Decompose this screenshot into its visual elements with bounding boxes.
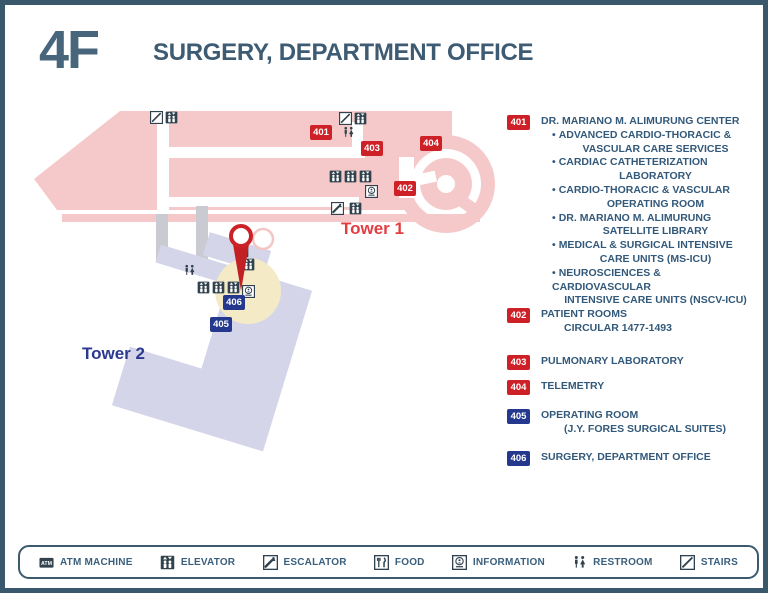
elevator-icon [242,258,255,271]
information-icon [452,555,467,570]
legend-item-information: INFORMATION [452,555,545,570]
room-entry-402: 402PATIENT ROOMSCIRCULAR 1477-1493 [507,308,749,336]
svg-text:ATM: ATM [41,561,53,567]
room-badge: 401 [507,115,530,130]
elevator-icon [236,245,249,258]
room-sub-item: •NEUROSCIENCES & CARDIOVASCULARINTENSIVE… [541,267,749,308]
restroom-icon [183,264,196,277]
legend-item-food: FOOD [374,555,425,570]
room-badge: 403 [507,355,530,370]
stairs-icon [339,112,352,125]
room-label: SURGERY, DEPARTMENT OFFICE [541,451,749,465]
legend-label: STAIRS [701,557,738,568]
room-label: DR. MARIANO M. ALIMURUNG CENTER•ADVANCED… [541,115,749,308]
room-badge: 402 [507,308,530,323]
stairs-icon [150,111,163,124]
restroom-icon [572,555,587,570]
room-entry-404: 404TELEMETRY [507,380,749,395]
map-room-badge-401: 401 [310,125,332,140]
map-room-badge-405: 405 [210,317,232,332]
legend-label: RESTROOM [593,557,652,568]
elevator-icon [165,111,178,124]
room-sub-item: •CARDIAC CATHETERIZATIONLABORATORY [541,156,749,184]
room-badge: 405 [507,409,530,424]
tower1-label: Tower 1 [341,219,404,239]
floor-map-page: 4F SURGERY, DEPARTMENT OFFICE Tower 1 To… [0,0,768,593]
legend-label: ESCALATOR [284,557,347,568]
room-entry-403: 403PULMONARY LABORATORY [507,355,749,370]
map-room-badge-404: 404 [420,136,442,151]
room-entry-401: 401DR. MARIANO M. ALIMURUNG CENTER•ADVAN… [507,115,749,308]
room-label: PULMONARY LABORATORY [541,355,749,369]
room-sub-item: •CARDIO-THORACIC & VASCULAROPERATING ROO… [541,184,749,212]
stairs-icon [680,555,695,570]
tower2-label: Tower 2 [82,344,145,364]
legend-label: ELEVATOR [181,557,235,568]
room-sub-item: •MEDICAL & SURGICAL INTENSIVECARE UNITS … [541,239,749,267]
elevator-icon [212,281,225,294]
elevator-icon [329,170,342,183]
restroom-icon [342,126,355,139]
legend-label: INFORMATION [473,557,545,568]
escalator-icon [263,555,278,570]
room-sub-item: •ADVANCED CARDIO-THORACIC &VASCULAR CARE… [541,129,749,157]
room-label: PATIENT ROOMSCIRCULAR 1477-1493 [541,308,749,336]
room-badge: 404 [507,380,530,395]
elevator-icon [197,281,210,294]
elevator-icon [344,170,357,183]
legend-item-escalator: ESCALATOR [263,555,347,570]
information-icon [365,185,378,198]
legend-label: ATM MACHINE [60,557,133,568]
legend-item-stairs: STAIRS [680,555,738,570]
elevator-icon [349,202,362,215]
room-badge: 406 [507,451,530,466]
legend-item-restroom: RESTROOM [572,555,652,570]
room-entry-405: 405OPERATING ROOM(J.Y. FORES SURGICAL SU… [507,409,749,437]
room-label: TELEMETRY [541,380,749,394]
legend-item-atm: ATMATM MACHINE [39,555,133,570]
food-icon [374,555,389,570]
map-room-badge-406: 406 [223,295,245,310]
escalator-icon [331,202,344,215]
legend-item-elevator: ELEVATOR [160,555,235,570]
room-label: OPERATING ROOM(J.Y. FORES SURGICAL SUITE… [541,409,749,437]
room-sub-item: •DR. MARIANO M. ALIMURUNGSATELLITE LIBRA… [541,212,749,240]
legend-bar: ATMATM MACHINEELEVATORESCALATORFOODINFOR… [18,545,759,579]
atm-icon: ATM [39,555,54,570]
legend-label: FOOD [395,557,425,568]
elevator-icon [359,170,372,183]
room-entry-406: 406SURGERY, DEPARTMENT OFFICE [507,451,749,466]
elevator-icon [160,555,175,570]
map-room-badge-403: 403 [361,141,383,156]
map-room-badge-402: 402 [394,181,416,196]
elevator-icon [227,281,240,294]
elevator-icon [354,112,367,125]
